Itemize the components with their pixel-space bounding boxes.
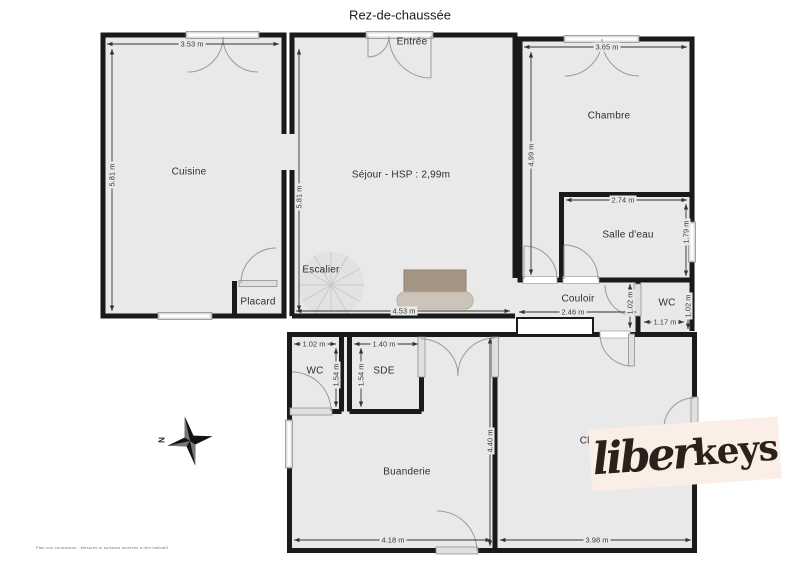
floor-plan-canvas: Rez-de-chaussée Cuisine Séjour - HSP : 2… [0, 0, 800, 566]
dim-chambre-bas-width: 3.98 m [584, 536, 611, 545]
dim-salle-eau-width: 2.74 m [610, 196, 637, 205]
spiral-stairs-icon [298, 252, 364, 318]
room-label-escalier: Escalier [302, 265, 339, 276]
dim-sde-height: 1.54 m [357, 362, 366, 389]
logo-text-keys: keys [691, 430, 778, 472]
dim-buanderie-height: 4.40 m [486, 428, 495, 455]
room-label-cuisine: Cuisine [172, 167, 207, 178]
dim-sde-width: 1.40 m [371, 340, 398, 349]
compass-north-icon [162, 412, 217, 470]
room-label-chambre-haut: Chambre [588, 111, 631, 122]
room-label-buanderie: Buanderie [383, 467, 430, 478]
page-title: Rez-de-chaussée [349, 8, 451, 23]
plan-disclaimer: Plan non contractuel - Mesures et surfac… [36, 545, 168, 550]
dim-wc-haut-width: 1.17 m [652, 318, 679, 327]
dim-sejour-width: 4.53 m [391, 307, 418, 316]
dim-couloir-width: 2.46 m [560, 308, 587, 317]
dim-salle-eau-height: 1.79 m [682, 219, 691, 246]
dim-sejour-height: 5.81 m [295, 184, 304, 211]
room-label-couloir: Couloir [561, 294, 594, 305]
dim-chambre-haut-width: 3.65 m [594, 43, 621, 52]
dim-chambre-haut-height: 4.99 m [527, 142, 536, 169]
liberkeys-logo: liberkeys [588, 416, 782, 491]
logo-text-liber: liber [591, 432, 694, 483]
room-label-wc-haut: WC [658, 298, 675, 309]
dim-cuisine-height: 5.81 m [108, 162, 117, 189]
dim-cuisine-width: 3.53 m [179, 40, 206, 49]
room-label-entree: Entrée [397, 37, 428, 48]
room-label-wc-bas: WC [306, 366, 323, 377]
room-label-sejour: Séjour - HSP : 2,99m [352, 170, 450, 181]
dim-wc-bas-width: 1.02 m [301, 340, 328, 349]
couch-icon [397, 270, 473, 309]
room-label-placard: Placard [240, 297, 275, 308]
dim-buanderie-width: 4.18 m [380, 536, 407, 545]
dim-couloir-door-height: 1.02 m [626, 290, 635, 317]
room-label-salle-eau: Salle d'eau [602, 230, 653, 241]
dim-wc-bas-height: 1.54 m [332, 362, 341, 389]
compass-north-label: N [158, 437, 167, 443]
dim-wc-haut-height: 1.02 m [684, 293, 693, 320]
room-label-sde: SDE [373, 366, 394, 377]
